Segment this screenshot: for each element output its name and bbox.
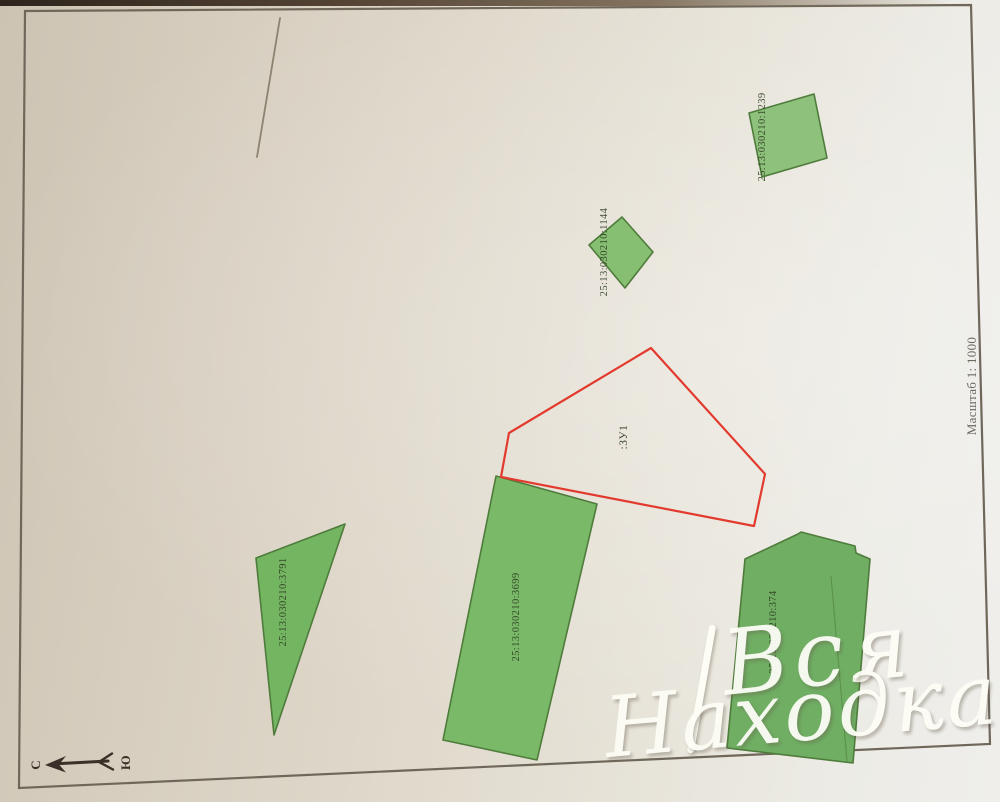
cadastral-map-canvas: 25:13:030210:123925:13:030210:114425:13:… <box>0 0 1000 802</box>
scale-label: Масштаб 1: 1000 <box>964 320 980 452</box>
stray-fold-mark <box>257 18 280 157</box>
compass-south-label: Ю <box>118 756 134 770</box>
parcel-cadastral-number-label: 25:13:030210:3791 <box>278 557 289 646</box>
parcel-cadastral-number-label: 25:13:030210:1144 <box>599 207 610 296</box>
map-photo: 25:13:030210:123925:13:030210:114425:13:… <box>0 0 1000 802</box>
parcel-polygon <box>727 532 870 763</box>
parcel-cadastral-number-label: 25:13:030210:1239 <box>757 92 768 181</box>
compass-north-label: С <box>28 758 44 772</box>
parcel-cadastral-number-label: 25:13:030210:374 <box>768 590 779 674</box>
parcel-polygon <box>256 524 345 735</box>
parcel-cadastral-number-label: 25:13:030210:3699 <box>511 572 522 661</box>
subject-parcel-label: :ЗУ1 <box>618 425 630 450</box>
